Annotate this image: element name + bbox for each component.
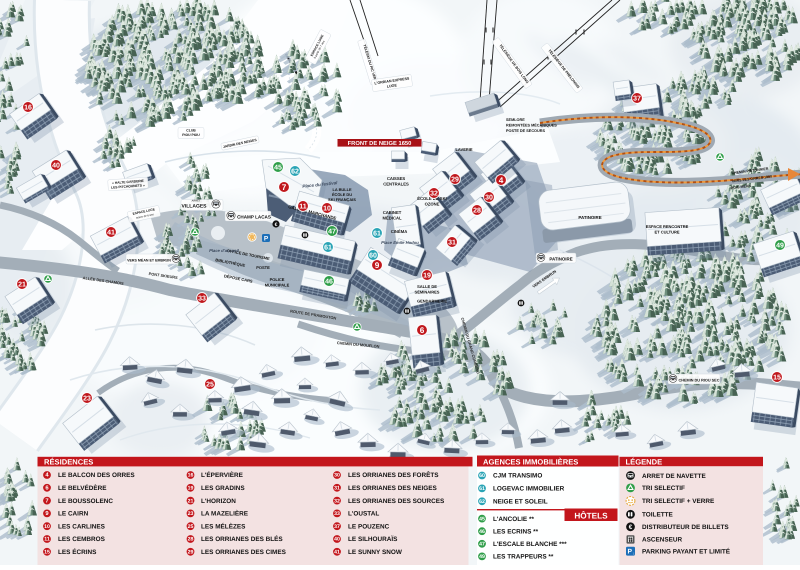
svg-text:47: 47 [328, 229, 336, 236]
svg-text:62: 62 [479, 499, 485, 505]
svg-text:28: 28 [188, 537, 194, 543]
svg-text:ASCENSEUR: ASCENSEUR [642, 537, 683, 544]
svg-text:REMONTÉES MÉCANIQUES: REMONTÉES MÉCANIQUES [506, 123, 557, 128]
svg-text:CHEMIN DU RIOU SEC: CHEMIN DU RIOU SEC [679, 378, 720, 382]
svg-text:Place Emile Hodou: Place Emile Hodou [381, 240, 419, 245]
svg-text:€: € [275, 222, 278, 228]
svg-text:SKI FRANÇAIS: SKI FRANÇAIS [328, 197, 356, 202]
svg-text:LES ORRIANES DES SOURCES: LES ORRIANES DES SOURCES [348, 498, 445, 505]
svg-text:9: 9 [375, 261, 380, 270]
svg-text:LE BOUSSOLENC: LE BOUSSOLENC [58, 498, 113, 505]
svg-text:LÉGENDE: LÉGENDE [626, 457, 663, 466]
svg-text:60: 60 [479, 473, 485, 479]
svg-text:POSTE DE SECOURS: POSTE DE SECOURS [506, 129, 545, 133]
svg-text:60: 60 [369, 253, 377, 260]
svg-text:POLICE: POLICE [270, 277, 285, 282]
svg-text:POSTE: POSTE [256, 265, 270, 270]
svg-text:LE POUZENC: LE POUZENC [348, 523, 390, 530]
svg-text:16: 16 [188, 473, 194, 479]
svg-text:L'ÉPERVIÈRE: L'ÉPERVIÈRE [201, 471, 244, 479]
svg-text:PATINOIRE: PATINOIRE [578, 215, 601, 220]
svg-text:29: 29 [188, 550, 194, 556]
svg-text:LES ORRIANES DES NEIGES: LES ORRIANES DES NEIGES [348, 485, 438, 492]
svg-text:49: 49 [479, 554, 485, 560]
svg-text:11: 11 [44, 537, 50, 543]
svg-text:P: P [628, 549, 633, 556]
svg-text:19: 19 [188, 486, 194, 492]
svg-text:LE SILHOURAÏS: LE SILHOURAÏS [348, 535, 398, 543]
svg-text:32: 32 [430, 191, 438, 198]
svg-text:LES MÉLÈZES: LES MÉLÈZES [201, 522, 246, 530]
svg-text:VILLAGES: VILLAGES [181, 204, 207, 210]
svg-text:10: 10 [323, 206, 331, 213]
svg-text:ET CULTURE: ET CULTURE [654, 230, 679, 235]
svg-text:25: 25 [206, 382, 214, 389]
svg-text:61: 61 [479, 486, 485, 492]
svg-text:46: 46 [479, 529, 485, 535]
svg-text:TRI SELECTIF + VERRE: TRI SELECTIF + VERRE [642, 498, 715, 505]
svg-text:↕: ↕ [633, 552, 635, 556]
svg-text:DISTRIBUTEUR DE BILLETS: DISTRIBUTEUR DE BILLETS [642, 524, 729, 531]
svg-text:LOGEVAC IMMOBILIER: LOGEVAC IMMOBILIER [493, 486, 565, 493]
svg-text:LE BALCON DES ORRES: LE BALCON DES ORRES [58, 472, 135, 479]
svg-text:LA MAZELIÈRE: LA MAZELIÈRE [201, 510, 249, 518]
svg-text:LES GRADINS: LES GRADINS [201, 485, 245, 492]
svg-text:CJM TRANSIMO: CJM TRANSIMO [493, 473, 542, 480]
svg-text:AGENCES IMMOBILIÈRES: AGENCES IMMOBILIÈRES [483, 458, 578, 467]
svg-text:31: 31 [334, 486, 340, 492]
svg-text:SALLE DE: SALLE DE [417, 284, 437, 289]
svg-text:46: 46 [325, 279, 333, 286]
svg-text:33: 33 [198, 296, 206, 303]
svg-text:CAISSES: CAISSES [387, 176, 406, 181]
svg-text:VERS MÉAN ET EMBRUN: VERS MÉAN ET EMBRUN [127, 257, 171, 262]
svg-text:30: 30 [334, 473, 340, 479]
svg-text:37: 37 [633, 96, 641, 103]
svg-text:47: 47 [479, 542, 485, 548]
svg-text:21: 21 [188, 498, 194, 504]
svg-text:LE BELVÉDÈRE: LE BELVÉDÈRE [58, 484, 107, 492]
svg-text:19: 19 [423, 273, 431, 280]
svg-text:LES ÉCRINS: LES ÉCRINS [58, 548, 97, 556]
svg-text:11: 11 [299, 204, 307, 211]
svg-text:TRI SELECTIF: TRI SELECTIF [642, 485, 685, 492]
svg-text:TOILETTE: TOILETTE [642, 512, 674, 519]
svg-text:CABINET: CABINET [383, 210, 402, 215]
svg-text:30: 30 [485, 195, 493, 202]
svg-text:€: € [629, 524, 633, 531]
svg-text:62: 62 [291, 169, 299, 176]
svg-text:4: 4 [499, 176, 504, 185]
svg-text:LES ECRINS **: LES ECRINS ** [493, 528, 539, 535]
svg-text:28: 28 [473, 208, 481, 215]
svg-text:23: 23 [83, 396, 91, 403]
svg-text:61: 61 [324, 245, 332, 252]
svg-text:40: 40 [52, 163, 60, 170]
svg-text:15: 15 [44, 550, 50, 556]
svg-text:16: 16 [24, 105, 32, 112]
svg-text:41: 41 [334, 550, 340, 556]
svg-text:7: 7 [45, 498, 48, 504]
svg-text:CINÉMA: CINÉMA [391, 229, 408, 234]
svg-text:10: 10 [44, 524, 50, 530]
svg-text:L'ESCALE BLANCHE ***: L'ESCALE BLANCHE *** [493, 541, 567, 548]
svg-text:SÉMINAIRES: SÉMINAIRES [415, 290, 440, 295]
svg-text:15: 15 [773, 375, 781, 382]
svg-text:RÉSIDENCES: RÉSIDENCES [44, 457, 93, 466]
svg-text:LES CEMBROS: LES CEMBROS [58, 536, 106, 543]
svg-text:45: 45 [274, 165, 282, 172]
svg-text:29: 29 [451, 177, 459, 184]
svg-text:PIOU PIOU: PIOU PIOU [182, 133, 200, 137]
svg-text:21: 21 [18, 282, 26, 289]
svg-text:LE CAIRN: LE CAIRN [58, 511, 89, 518]
svg-text:LES ORRIANES DES FORÊTS: LES ORRIANES DES FORÊTS [348, 471, 439, 479]
svg-text:CHAMP LACAS: CHAMP LACAS [237, 215, 271, 220]
svg-text:33: 33 [334, 511, 340, 517]
svg-text:32: 32 [334, 498, 340, 504]
svg-text:PARKING PAYANT ET LIMITÉ: PARKING PAYANT ET LIMITÉ [642, 548, 731, 556]
svg-text:L'ANCOLIE **: L'ANCOLIE ** [493, 516, 534, 523]
svg-text:ARRÊT: ARRÊT [192, 199, 201, 203]
svg-text:6: 6 [420, 326, 425, 335]
svg-text:L'OUSTAL: L'OUSTAL [348, 511, 379, 518]
svg-text:23: 23 [188, 511, 194, 517]
svg-text:NEIGE ET SOLEIL: NEIGE ET SOLEIL [493, 499, 548, 506]
svg-text:LES ORRIANES DES BLÉS: LES ORRIANES DES BLÉS [201, 535, 283, 543]
svg-text:ARRET DE NAVETTE: ARRET DE NAVETTE [642, 473, 707, 480]
svg-text:OZONE: OZONE [425, 202, 440, 207]
svg-text:40: 40 [334, 537, 340, 543]
svg-text:SEMLORE: SEMLORE [506, 118, 525, 122]
svg-text:CENTRALES: CENTRALES [383, 182, 409, 187]
svg-text:HÔTELS: HÔTELS [574, 510, 608, 520]
svg-text:61: 61 [373, 231, 381, 238]
svg-text:31: 31 [448, 240, 456, 247]
svg-text:L'HORIZON: L'HORIZON [201, 498, 236, 505]
svg-text:LES CARLINES: LES CARLINES [58, 523, 106, 530]
svg-text:LES ORRIANES DES CIMES: LES ORRIANES DES CIMES [201, 549, 287, 556]
svg-text:7: 7 [282, 183, 287, 192]
svg-text:FRONT DE NEIGE 1650: FRONT DE NEIGE 1650 [348, 140, 412, 147]
svg-text:41: 41 [107, 230, 115, 237]
svg-text:LAVERIE: LAVERIE [455, 147, 472, 152]
svg-text:CLUB: CLUB [186, 129, 196, 133]
svg-text:Place d'accueil: Place d'accueil [209, 248, 240, 253]
svg-text:MÉDICAL: MÉDICAL [382, 216, 402, 221]
svg-text:ESPACE RENCONTRE: ESPACE RENCONTRE [646, 224, 689, 229]
svg-text:P: P [264, 236, 269, 243]
svg-text:MUNICIPALE: MUNICIPALE [265, 283, 290, 288]
svg-text:49: 49 [776, 243, 784, 250]
svg-text:PATINOIRE: PATINOIRE [549, 256, 572, 261]
svg-text:LES TRAPPEURS **: LES TRAPPEURS ** [493, 554, 554, 561]
svg-text:37: 37 [334, 524, 340, 530]
svg-text:GENDARMERIE: GENDARMERIE [417, 299, 447, 304]
svg-text:25: 25 [188, 524, 194, 530]
svg-text:LE SUNNY SNOW: LE SUNNY SNOW [348, 549, 403, 556]
svg-text:45: 45 [479, 516, 485, 522]
